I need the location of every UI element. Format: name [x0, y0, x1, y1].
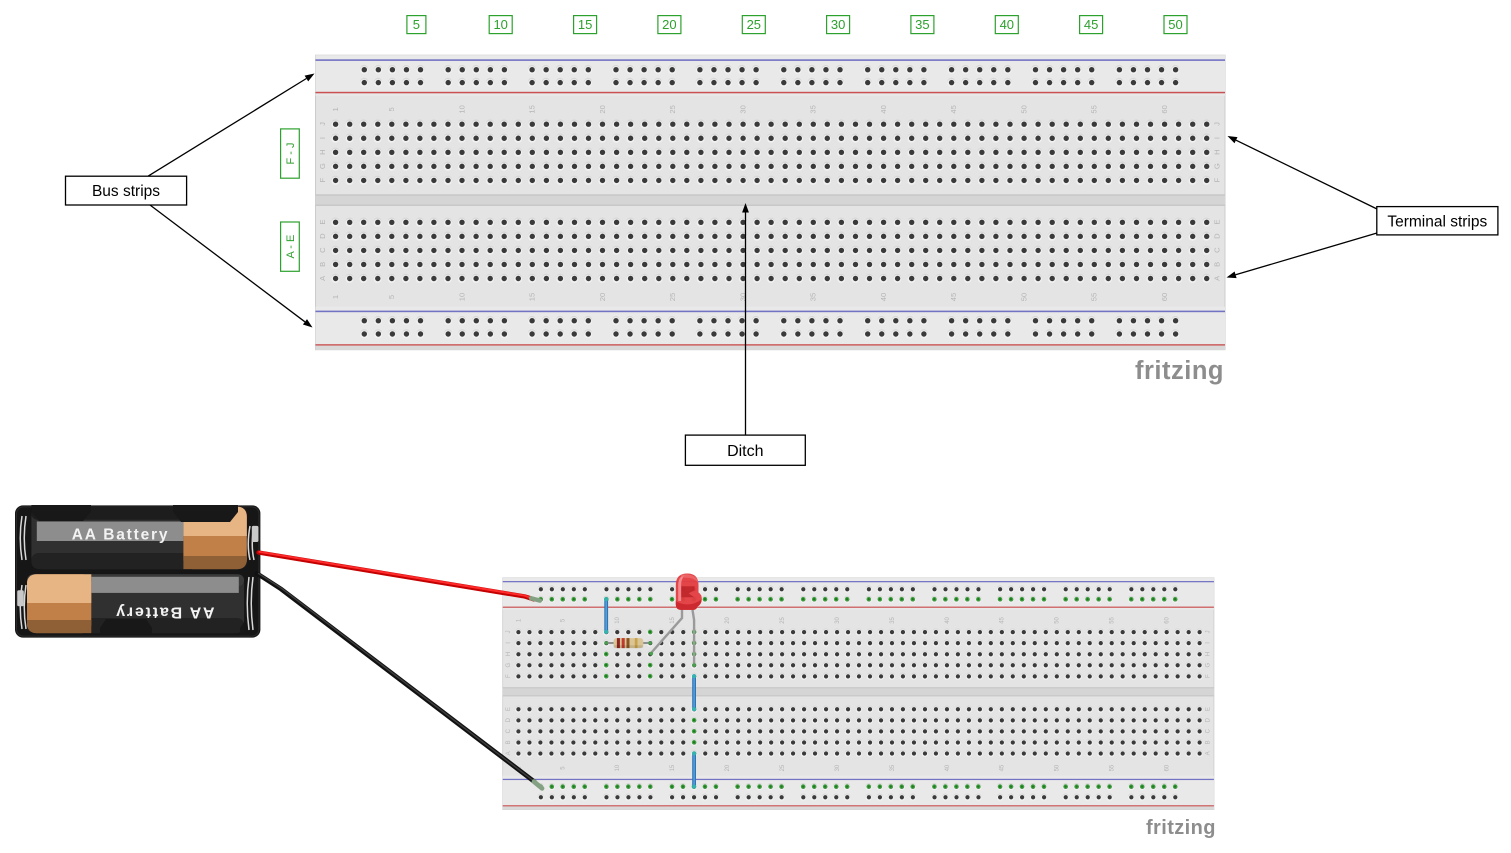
svg-text:J: J: [1213, 122, 1222, 126]
svg-text:55: 55: [1090, 293, 1099, 301]
svg-text:60: 60: [1165, 764, 1171, 771]
svg-text:D: D: [506, 717, 512, 722]
svg-text:35: 35: [809, 293, 818, 301]
svg-text:G: G: [1206, 662, 1212, 667]
svg-text:25: 25: [780, 764, 786, 771]
svg-text:50: 50: [1055, 764, 1061, 771]
svg-text:20: 20: [598, 293, 607, 301]
svg-text:30: 30: [835, 616, 841, 623]
svg-text:J: J: [318, 122, 327, 126]
svg-text:10: 10: [615, 764, 621, 771]
svg-text:B: B: [1206, 740, 1212, 744]
svg-text:30: 30: [739, 293, 748, 301]
svg-text:F: F: [506, 674, 512, 678]
svg-text:20: 20: [598, 105, 607, 113]
svg-text:55: 55: [1110, 616, 1116, 623]
svg-text:20: 20: [725, 764, 731, 771]
svg-text:15: 15: [528, 105, 537, 113]
svg-text:AA Battery: AA Battery: [114, 604, 214, 621]
svg-text:A: A: [506, 751, 512, 755]
svg-text:30: 30: [739, 105, 748, 113]
svg-text:E: E: [1206, 707, 1212, 711]
svg-text:55: 55: [1090, 105, 1099, 113]
svg-text:10: 10: [457, 293, 466, 301]
svg-text:30: 30: [835, 764, 841, 771]
svg-text:D: D: [1213, 233, 1222, 239]
svg-text:50: 50: [1055, 616, 1061, 623]
svg-text:35: 35: [890, 764, 896, 771]
svg-text:I: I: [318, 137, 327, 139]
svg-text:45: 45: [1084, 17, 1098, 32]
svg-text:I: I: [1213, 137, 1222, 139]
svg-text:10: 10: [615, 616, 621, 623]
svg-text:G: G: [318, 163, 327, 169]
svg-text:35: 35: [890, 616, 896, 623]
svg-text:20: 20: [725, 616, 731, 623]
svg-text:B: B: [506, 740, 512, 744]
svg-text:AA Battery: AA Battery: [72, 527, 170, 544]
svg-text:H: H: [1206, 652, 1212, 656]
svg-text:C: C: [318, 247, 327, 253]
svg-text:E: E: [1213, 220, 1222, 225]
svg-text:5: 5: [413, 17, 420, 32]
svg-text:60: 60: [1160, 293, 1169, 301]
svg-text:25: 25: [668, 105, 677, 113]
svg-text:55: 55: [1110, 764, 1116, 771]
svg-text:Bus strips: Bus strips: [92, 183, 160, 200]
svg-text:H: H: [318, 149, 327, 154]
svg-text:G: G: [506, 662, 512, 667]
svg-text:35: 35: [809, 105, 818, 113]
svg-text:25: 25: [780, 616, 786, 623]
svg-text:40: 40: [1000, 17, 1014, 32]
svg-text:fritzing: fritzing: [1146, 817, 1216, 839]
svg-text:50: 50: [1020, 293, 1029, 301]
svg-text:30: 30: [831, 17, 845, 32]
svg-text:F - J: F - J: [285, 143, 297, 165]
svg-text:40: 40: [879, 105, 888, 113]
svg-text:C: C: [1213, 247, 1222, 253]
svg-text:15: 15: [528, 293, 537, 301]
svg-text:Terminal strips: Terminal strips: [1387, 213, 1487, 230]
svg-text:40: 40: [879, 293, 888, 301]
svg-text:D: D: [1206, 717, 1212, 722]
svg-text:45: 45: [949, 293, 958, 301]
svg-text:15: 15: [578, 17, 592, 32]
svg-text:A - E: A - E: [285, 235, 297, 259]
svg-text:60: 60: [1165, 616, 1171, 623]
svg-text:J: J: [506, 630, 512, 633]
svg-text:E: E: [318, 220, 327, 225]
svg-text:50: 50: [1168, 17, 1182, 32]
svg-text:10: 10: [457, 105, 466, 113]
svg-text:45: 45: [949, 105, 958, 113]
svg-text:50: 50: [1020, 105, 1029, 113]
svg-text:1: 1: [331, 295, 340, 299]
svg-text:20: 20: [662, 17, 676, 32]
svg-text:F: F: [318, 178, 327, 183]
svg-text:25: 25: [747, 17, 761, 32]
svg-text:35: 35: [915, 17, 929, 32]
svg-text:1: 1: [331, 107, 340, 111]
svg-text:B: B: [318, 262, 327, 267]
svg-text:40: 40: [945, 616, 951, 623]
svg-text:D: D: [318, 233, 327, 239]
svg-text:B: B: [1213, 262, 1222, 267]
svg-text:C: C: [506, 728, 512, 733]
svg-text:40: 40: [945, 764, 951, 771]
svg-text:H: H: [1213, 149, 1222, 154]
svg-text:60: 60: [1160, 105, 1169, 113]
svg-text:F: F: [1206, 674, 1212, 678]
svg-text:J: J: [1206, 630, 1212, 633]
svg-text:C: C: [1206, 728, 1212, 733]
svg-text:25: 25: [668, 293, 677, 301]
svg-text:10: 10: [493, 17, 507, 32]
svg-text:15: 15: [670, 764, 676, 771]
svg-text:F: F: [1213, 178, 1222, 183]
svg-text:fritzing: fritzing: [1135, 357, 1224, 385]
svg-text:Ditch: Ditch: [727, 443, 763, 460]
svg-text:45: 45: [1000, 616, 1006, 623]
svg-text:E: E: [506, 707, 512, 711]
svg-text:15: 15: [670, 616, 676, 623]
svg-text:G: G: [1213, 163, 1222, 169]
svg-text:H: H: [506, 652, 512, 656]
svg-text:A: A: [1206, 751, 1212, 755]
svg-text:5: 5: [387, 295, 396, 299]
svg-text:45: 45: [1000, 764, 1006, 771]
svg-text:5: 5: [387, 107, 396, 111]
